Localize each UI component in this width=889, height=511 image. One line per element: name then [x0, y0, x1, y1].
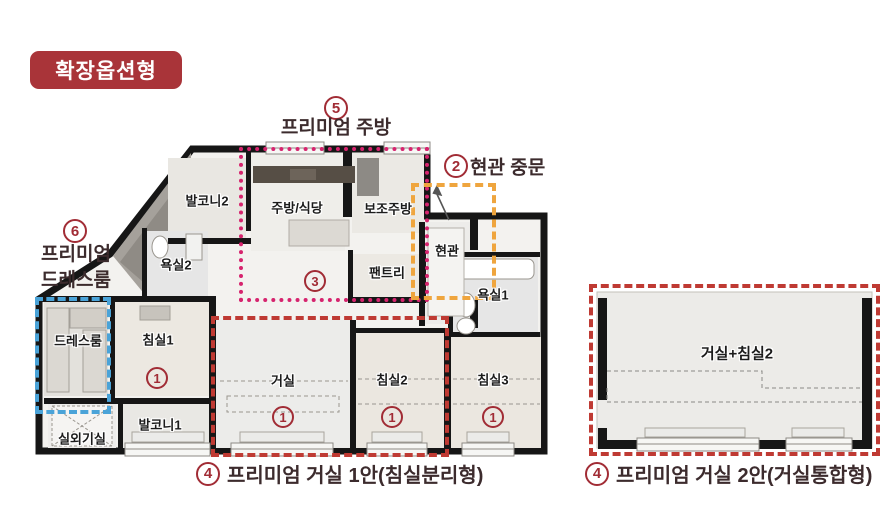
- room-label-living-bedroom2: 거실+침실2: [701, 343, 773, 364]
- room-label-aux-kitchen: 보조주방: [364, 199, 412, 218]
- annotation-premium-dressroom: 프리미엄 드레스룸: [41, 242, 111, 294]
- marker-bedroom1: 1: [146, 367, 168, 389]
- main-plan: [39, 142, 544, 456]
- room-label-balcony1: 발코니1: [138, 415, 181, 434]
- caption-living-option1: 4 프리미엄 거실 1안(침실분리형): [196, 459, 483, 488]
- option2-plan: [597, 292, 872, 451]
- room-label-bath1: 욕실1: [477, 285, 508, 304]
- room-label-entrance: 현관: [435, 241, 459, 260]
- room-label-outdoor-unit: 실외기실: [58, 429, 106, 448]
- caption-label-living-option2: 프리미엄 거실 2안(거실통합형): [616, 459, 872, 488]
- marker-living: 1: [272, 406, 294, 428]
- caption-num-living-option1: 4: [196, 462, 220, 486]
- caption-num-living-option2: 4: [585, 462, 609, 486]
- room-label-bedroom3: 침실3: [477, 370, 508, 389]
- room-label-pantry: 팬트리: [369, 263, 405, 282]
- annotation-premium-kitchen: 프리미엄 주방: [281, 113, 391, 140]
- marker-bedroom2: 1: [381, 406, 403, 428]
- marker-bedroom3: 1: [482, 406, 504, 428]
- room-label-living: 거실: [271, 371, 295, 390]
- annotation-num-premium-dressroom: 6: [63, 219, 87, 243]
- room-label-bedroom2: 침실2: [376, 370, 407, 389]
- annotation-num-entrance-door: 2: [444, 154, 468, 178]
- floorplan-page: 확장옵션형 발코니2 주방/식당 보조주방 현관 욕실2 팬트리 욕실1 드레스…: [0, 0, 889, 511]
- annotation-premium-dressroom-line1: 프리미엄: [41, 242, 111, 268]
- annotation-entrance-door: 현관 중문: [470, 153, 545, 180]
- room-label-bath2: 욕실2: [160, 255, 191, 274]
- room-label-balcony2: 발코니2: [185, 191, 228, 210]
- caption-living-option2: 4 프리미엄 거실 2안(거실통합형): [585, 459, 872, 488]
- room-label-kitchen-dining: 주방/식당: [271, 198, 322, 217]
- option-type-badge: 확장옵션형: [30, 51, 182, 89]
- room-label-dress-room: 드레스룸: [54, 331, 102, 350]
- caption-label-living-option1: 프리미엄 거실 1안(침실분리형): [227, 459, 483, 488]
- room-label-bedroom1: 침실1: [142, 330, 173, 349]
- annotation-premium-dressroom-line2: 드레스룸: [41, 268, 111, 294]
- marker-hall: 3: [304, 270, 326, 292]
